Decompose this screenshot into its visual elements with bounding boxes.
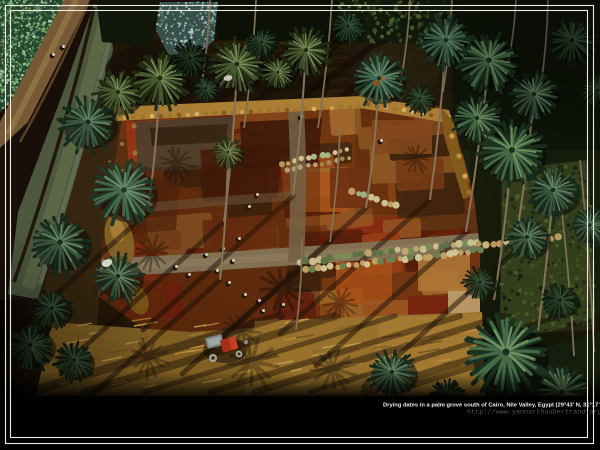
svg-text:http://www.yannarthusbertrand.: http://www.yannarthusbertrand.org [467,409,600,417]
